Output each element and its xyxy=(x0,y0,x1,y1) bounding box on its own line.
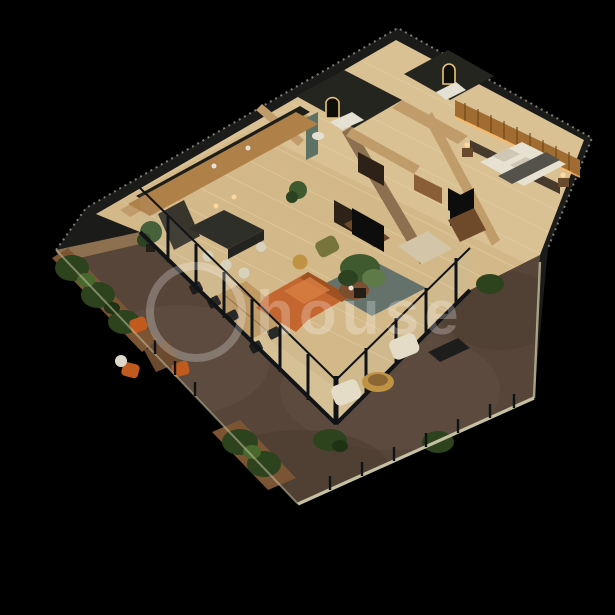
bedside-lamp xyxy=(560,172,565,177)
arched-mirror xyxy=(326,98,339,118)
pendant-light xyxy=(214,204,219,209)
side-table xyxy=(115,355,127,367)
counter-item xyxy=(246,146,251,151)
pendant-light xyxy=(232,195,237,200)
hedge xyxy=(476,274,504,294)
floorplan-render: house xyxy=(0,0,615,615)
bar-stool xyxy=(256,242,266,252)
gold-pouf xyxy=(293,255,308,270)
plant-leaf xyxy=(286,191,298,203)
nightstand xyxy=(462,148,473,157)
table-top-shine xyxy=(368,374,388,386)
hedge-shadow xyxy=(332,440,348,452)
toilet xyxy=(312,132,324,140)
counter-item xyxy=(212,164,217,169)
floorplan-scene: house xyxy=(0,0,615,615)
nightstand xyxy=(558,178,569,187)
bedside-lamp xyxy=(464,142,469,147)
watermark-text: house xyxy=(256,279,464,348)
bar-stool xyxy=(239,268,250,279)
ensuite-arched-mirror xyxy=(443,64,455,84)
